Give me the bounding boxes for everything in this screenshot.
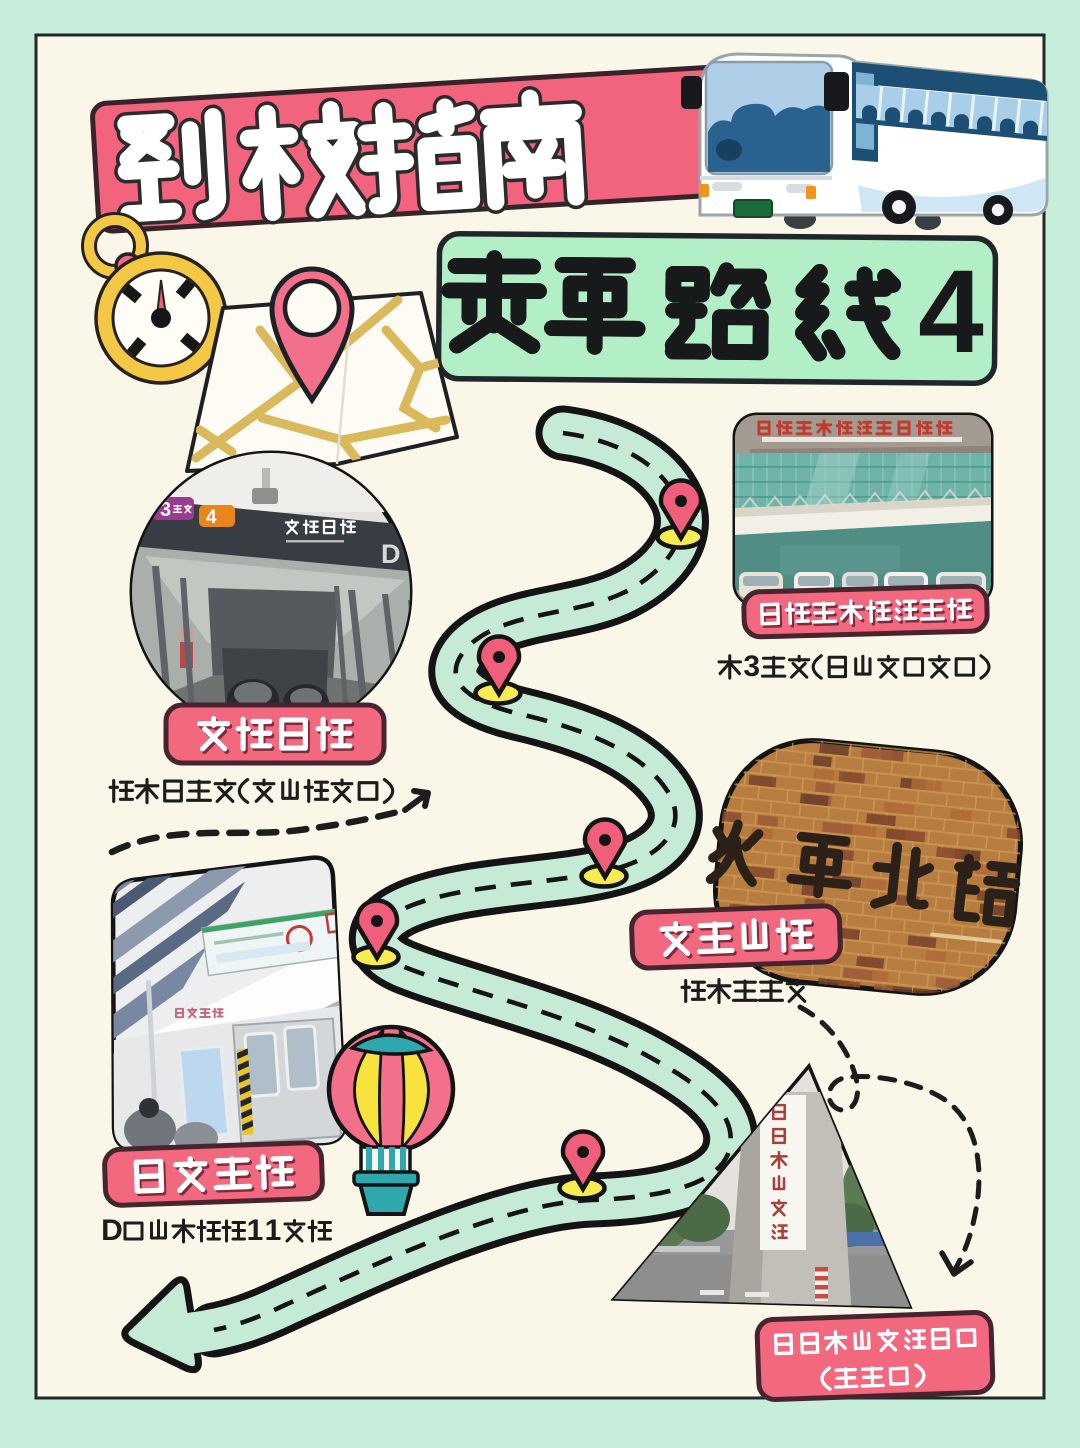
svg-text:3: 3: [743, 650, 760, 683]
svg-text:D: D: [101, 1214, 123, 1247]
svg-text:4: 4: [206, 507, 217, 528]
svg-text:D: D: [381, 539, 401, 569]
svg-text:1: 1: [247, 1214, 264, 1247]
svg-text:4: 4: [918, 246, 984, 378]
svg-text:1: 1: [265, 1214, 282, 1247]
